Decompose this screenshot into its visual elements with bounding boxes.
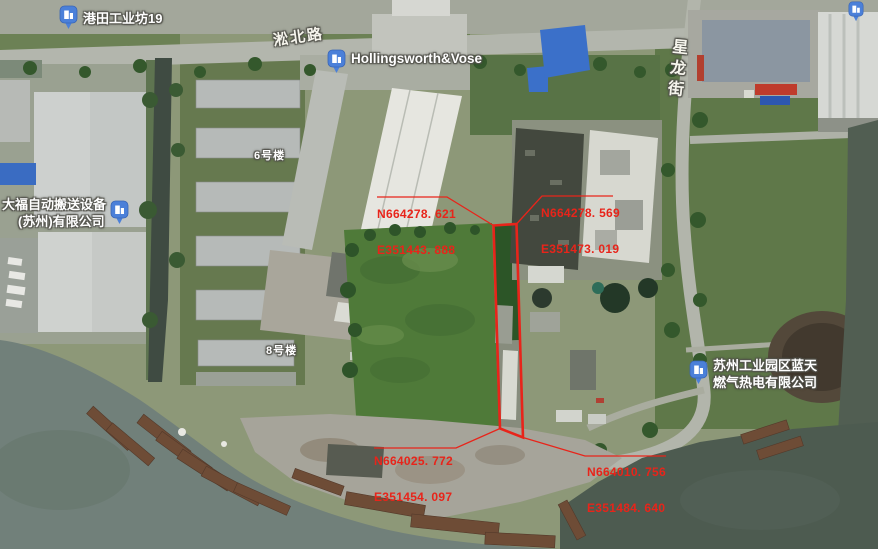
building-label-8: 8号楼 xyxy=(266,342,297,358)
poi-gangtian[interactable]: 港田工业坊19 xyxy=(59,5,162,30)
poi-label[interactable]: 大福自动搬送设备 (苏州)有限公司 xyxy=(2,196,106,230)
easting-value: E351443. 888 xyxy=(377,244,456,256)
northing-value: N664278. 621 xyxy=(377,208,456,220)
poi-top-right[interactable] xyxy=(848,1,864,22)
northing-value: N664025. 772 xyxy=(374,455,453,467)
northing-value: N664010. 756 xyxy=(587,466,666,478)
survey-annotation-sw: N664025. 772 E351454. 097 xyxy=(374,431,453,527)
survey-annotation-ne: N664278. 569 E351473. 019 xyxy=(541,183,620,279)
poi-label[interactable]: 苏州工业园区蓝天 燃气热电有限公司 xyxy=(713,357,817,391)
easting-value: E351454. 097 xyxy=(374,491,453,503)
satellite-map-canvas[interactable]: N664278. 621 E351443. 888 N664278. 569 E… xyxy=(0,0,878,549)
building-poi-icon[interactable] xyxy=(689,360,708,385)
poi-label-line1: 苏州工业园区蓝天 xyxy=(713,357,817,374)
northing-value: N664278. 569 xyxy=(541,207,620,219)
poi-label[interactable]: Hollingsworth&Vose xyxy=(351,51,482,67)
poi-label-line1: 大福自动搬送设备 xyxy=(2,196,106,213)
survey-annotation-se: N664010. 756 E351484. 640 xyxy=(587,442,666,538)
building-poi-icon[interactable] xyxy=(327,49,346,74)
poi-label-line2: (苏州)有限公司 xyxy=(2,213,106,230)
building-poi-icon[interactable] xyxy=(848,1,864,22)
survey-annotation-nw: N664278. 621 E351443. 888 xyxy=(377,184,456,280)
easting-value: E351473. 019 xyxy=(541,243,620,255)
poi-label-line2: 燃气热电有限公司 xyxy=(713,374,817,391)
poi-dafu[interactable]: 大福自动搬送设备 (苏州)有限公司 xyxy=(2,196,129,230)
easting-value: E351484. 640 xyxy=(587,502,666,514)
building-poi-icon[interactable] xyxy=(110,200,129,225)
building-poi-icon[interactable] xyxy=(59,5,78,30)
poi-lantian[interactable]: 苏州工业园区蓝天 燃气热电有限公司 xyxy=(689,357,817,391)
poi-hollingsworth-vose[interactable]: Hollingsworth&Vose xyxy=(327,49,482,74)
poi-label[interactable]: 港田工业坊19 xyxy=(83,11,162,27)
building-label-6: 6号楼 xyxy=(254,147,285,163)
